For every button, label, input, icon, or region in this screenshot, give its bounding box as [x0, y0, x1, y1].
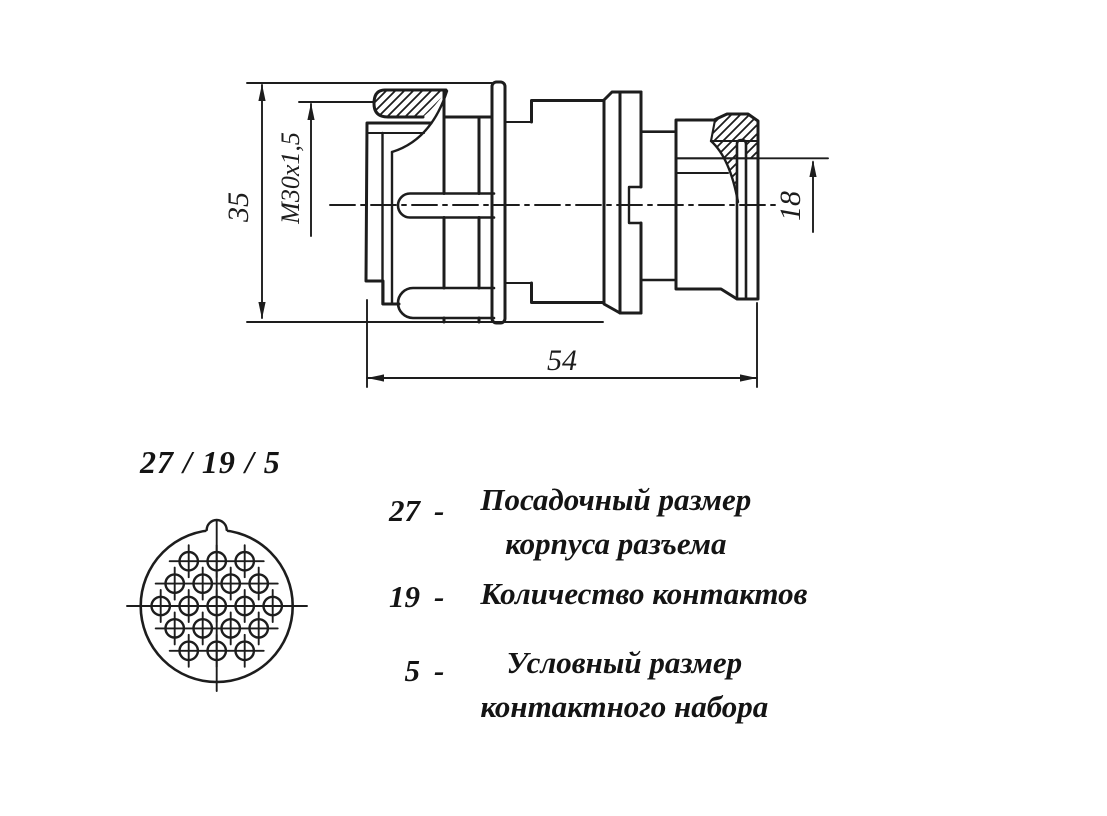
thread-section-hatch: [374, 90, 445, 117]
legend-item-5: 5 - Условный размер контактного набора: [368, 641, 768, 729]
legend-text-line: Условный размер: [480, 641, 768, 685]
legend-text-line: Посадочный размер: [480, 478, 751, 522]
side-view: 35 M30x1,5 18 54: [222, 82, 828, 387]
plug-body: [366, 82, 532, 323]
arrowhead-right: [740, 374, 757, 381]
lower-contact-pin: [398, 288, 494, 318]
legend-dash: -: [434, 493, 444, 566]
legend-value: 27: [368, 493, 420, 566]
legend-text: Количество контактов: [480, 572, 807, 616]
legend-dash: -: [434, 579, 444, 616]
legend-value: 19: [368, 579, 420, 616]
coupling-flange-outline: [604, 92, 641, 313]
arrowhead-up: [809, 160, 816, 177]
dim-35-label: 35: [222, 192, 255, 223]
connector-face-view: [127, 520, 307, 692]
pin-field: [142, 545, 292, 667]
cable-bushing: [737, 140, 746, 299]
barrel-top-edge: [532, 101, 605, 123]
coupling-flange: [604, 92, 641, 313]
designation-heading: 27 / 19 / 5: [140, 444, 281, 481]
legend-text-line: контактного набора: [480, 685, 768, 729]
legend-dash: -: [434, 653, 444, 729]
legend-text: Посадочный размер корпуса разъема: [480, 478, 751, 566]
dim-54-label: 54: [547, 344, 577, 377]
legend-text-line: корпуса разъема: [480, 522, 751, 566]
nut-thread-hatch-strip: [746, 141, 758, 158]
legend-value: 5: [368, 653, 420, 729]
barrel-bottom-edge: [532, 283, 605, 303]
legend-text: Условный размер контактного набора: [480, 641, 768, 729]
legend-text-line: Количество контактов: [480, 572, 807, 616]
arrowhead-down: [258, 302, 265, 319]
arrowhead-up: [307, 103, 314, 120]
arrowhead-left: [367, 374, 384, 381]
technical-drawing-page: 35 M30x1,5 18 54: [0, 0, 1107, 811]
arrowhead-up: [258, 84, 265, 101]
legend-item-19: 19 - Количество контактов: [368, 572, 807, 616]
thread-label: M30x1,5: [276, 132, 305, 225]
cable-nut: [676, 114, 758, 299]
legend-item-27: 27 - Посадочный размер корпуса разъема: [368, 478, 751, 566]
receptacle-body: [532, 92, 759, 313]
dim-18-label: 18: [774, 191, 807, 221]
